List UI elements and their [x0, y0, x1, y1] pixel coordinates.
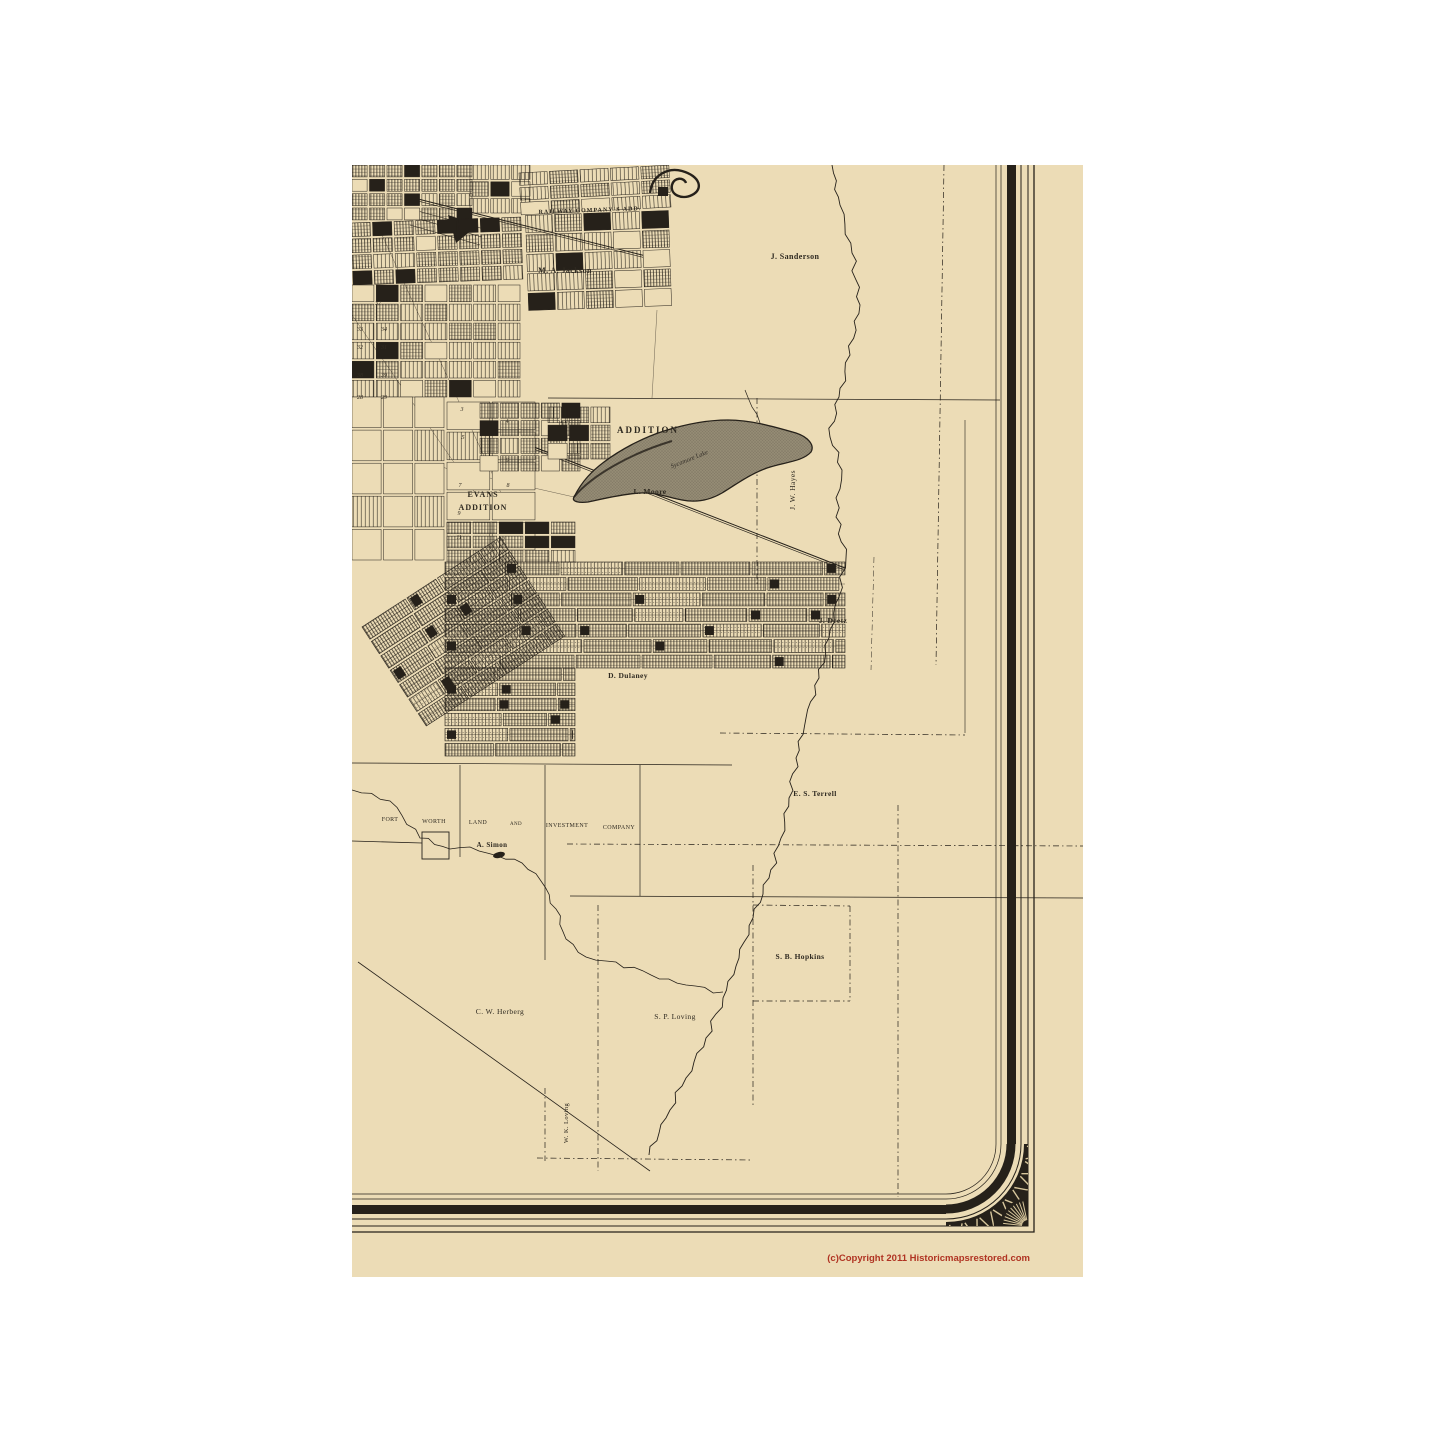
map-label: FORT	[382, 817, 399, 823]
map-label: INVESTMENT	[546, 823, 588, 829]
page-canvas: M. A. JacksonJ. SandersonRAILWAY COMPANY…	[0, 0, 1445, 1445]
map-label: COMPANY	[603, 825, 636, 831]
map-label: J. W. Hayes	[788, 470, 797, 510]
map-sheet: M. A. JacksonJ. SandersonRAILWAY COMPANY…	[352, 165, 1083, 1277]
map-label: J. Deetz	[819, 616, 848, 625]
map-label: WORTH	[422, 819, 446, 825]
lot-number: 5	[462, 435, 465, 441]
lot-number: 4	[506, 418, 509, 425]
lot-number: 12	[499, 537, 505, 543]
map-label: ADDITION	[617, 425, 679, 435]
map-label: E. S. Terrell	[793, 789, 836, 798]
map-label: ADDITION	[459, 503, 508, 512]
map-label: L. Moore	[633, 487, 666, 496]
map-label: C. W. Herberg	[476, 1007, 524, 1016]
lot-number: 32	[356, 345, 363, 351]
map-label: M. A. Jackson	[538, 266, 592, 275]
lot-number: 11	[456, 535, 462, 541]
lot-number: 6	[506, 458, 509, 464]
copyright-text: (c)Copyright 2011 Historicmapsrestored.c…	[827, 1253, 1030, 1264]
map-label: EVANS	[467, 490, 498, 499]
lot-number: 28	[357, 395, 363, 401]
lot-number: 38	[356, 373, 363, 379]
map-label: W. K. Loving	[563, 1102, 570, 1143]
lot-number: 3	[460, 407, 464, 413]
lot-number: 31	[380, 345, 387, 351]
lot-number: 33	[356, 327, 363, 333]
map-label: S. P. Loving	[654, 1012, 695, 1021]
map-label: D. Dulaney	[608, 671, 648, 680]
lot-number: 39	[380, 373, 387, 379]
map-label: S. B. Hopkins	[776, 952, 825, 961]
map-label: LAND	[469, 820, 488, 826]
lot-number: 37	[374, 301, 382, 307]
map-label: A. Simon	[477, 841, 508, 849]
lot-number: 29	[381, 395, 387, 401]
lot-number: 34	[380, 326, 387, 333]
map-svg: M. A. JacksonJ. SandersonRAILWAY COMPANY…	[352, 165, 1083, 1277]
lot-number: 8	[507, 483, 510, 489]
map-label: J. Sanderson	[771, 252, 820, 261]
map-label: AND	[510, 822, 522, 827]
lot-number: 9	[458, 511, 461, 517]
